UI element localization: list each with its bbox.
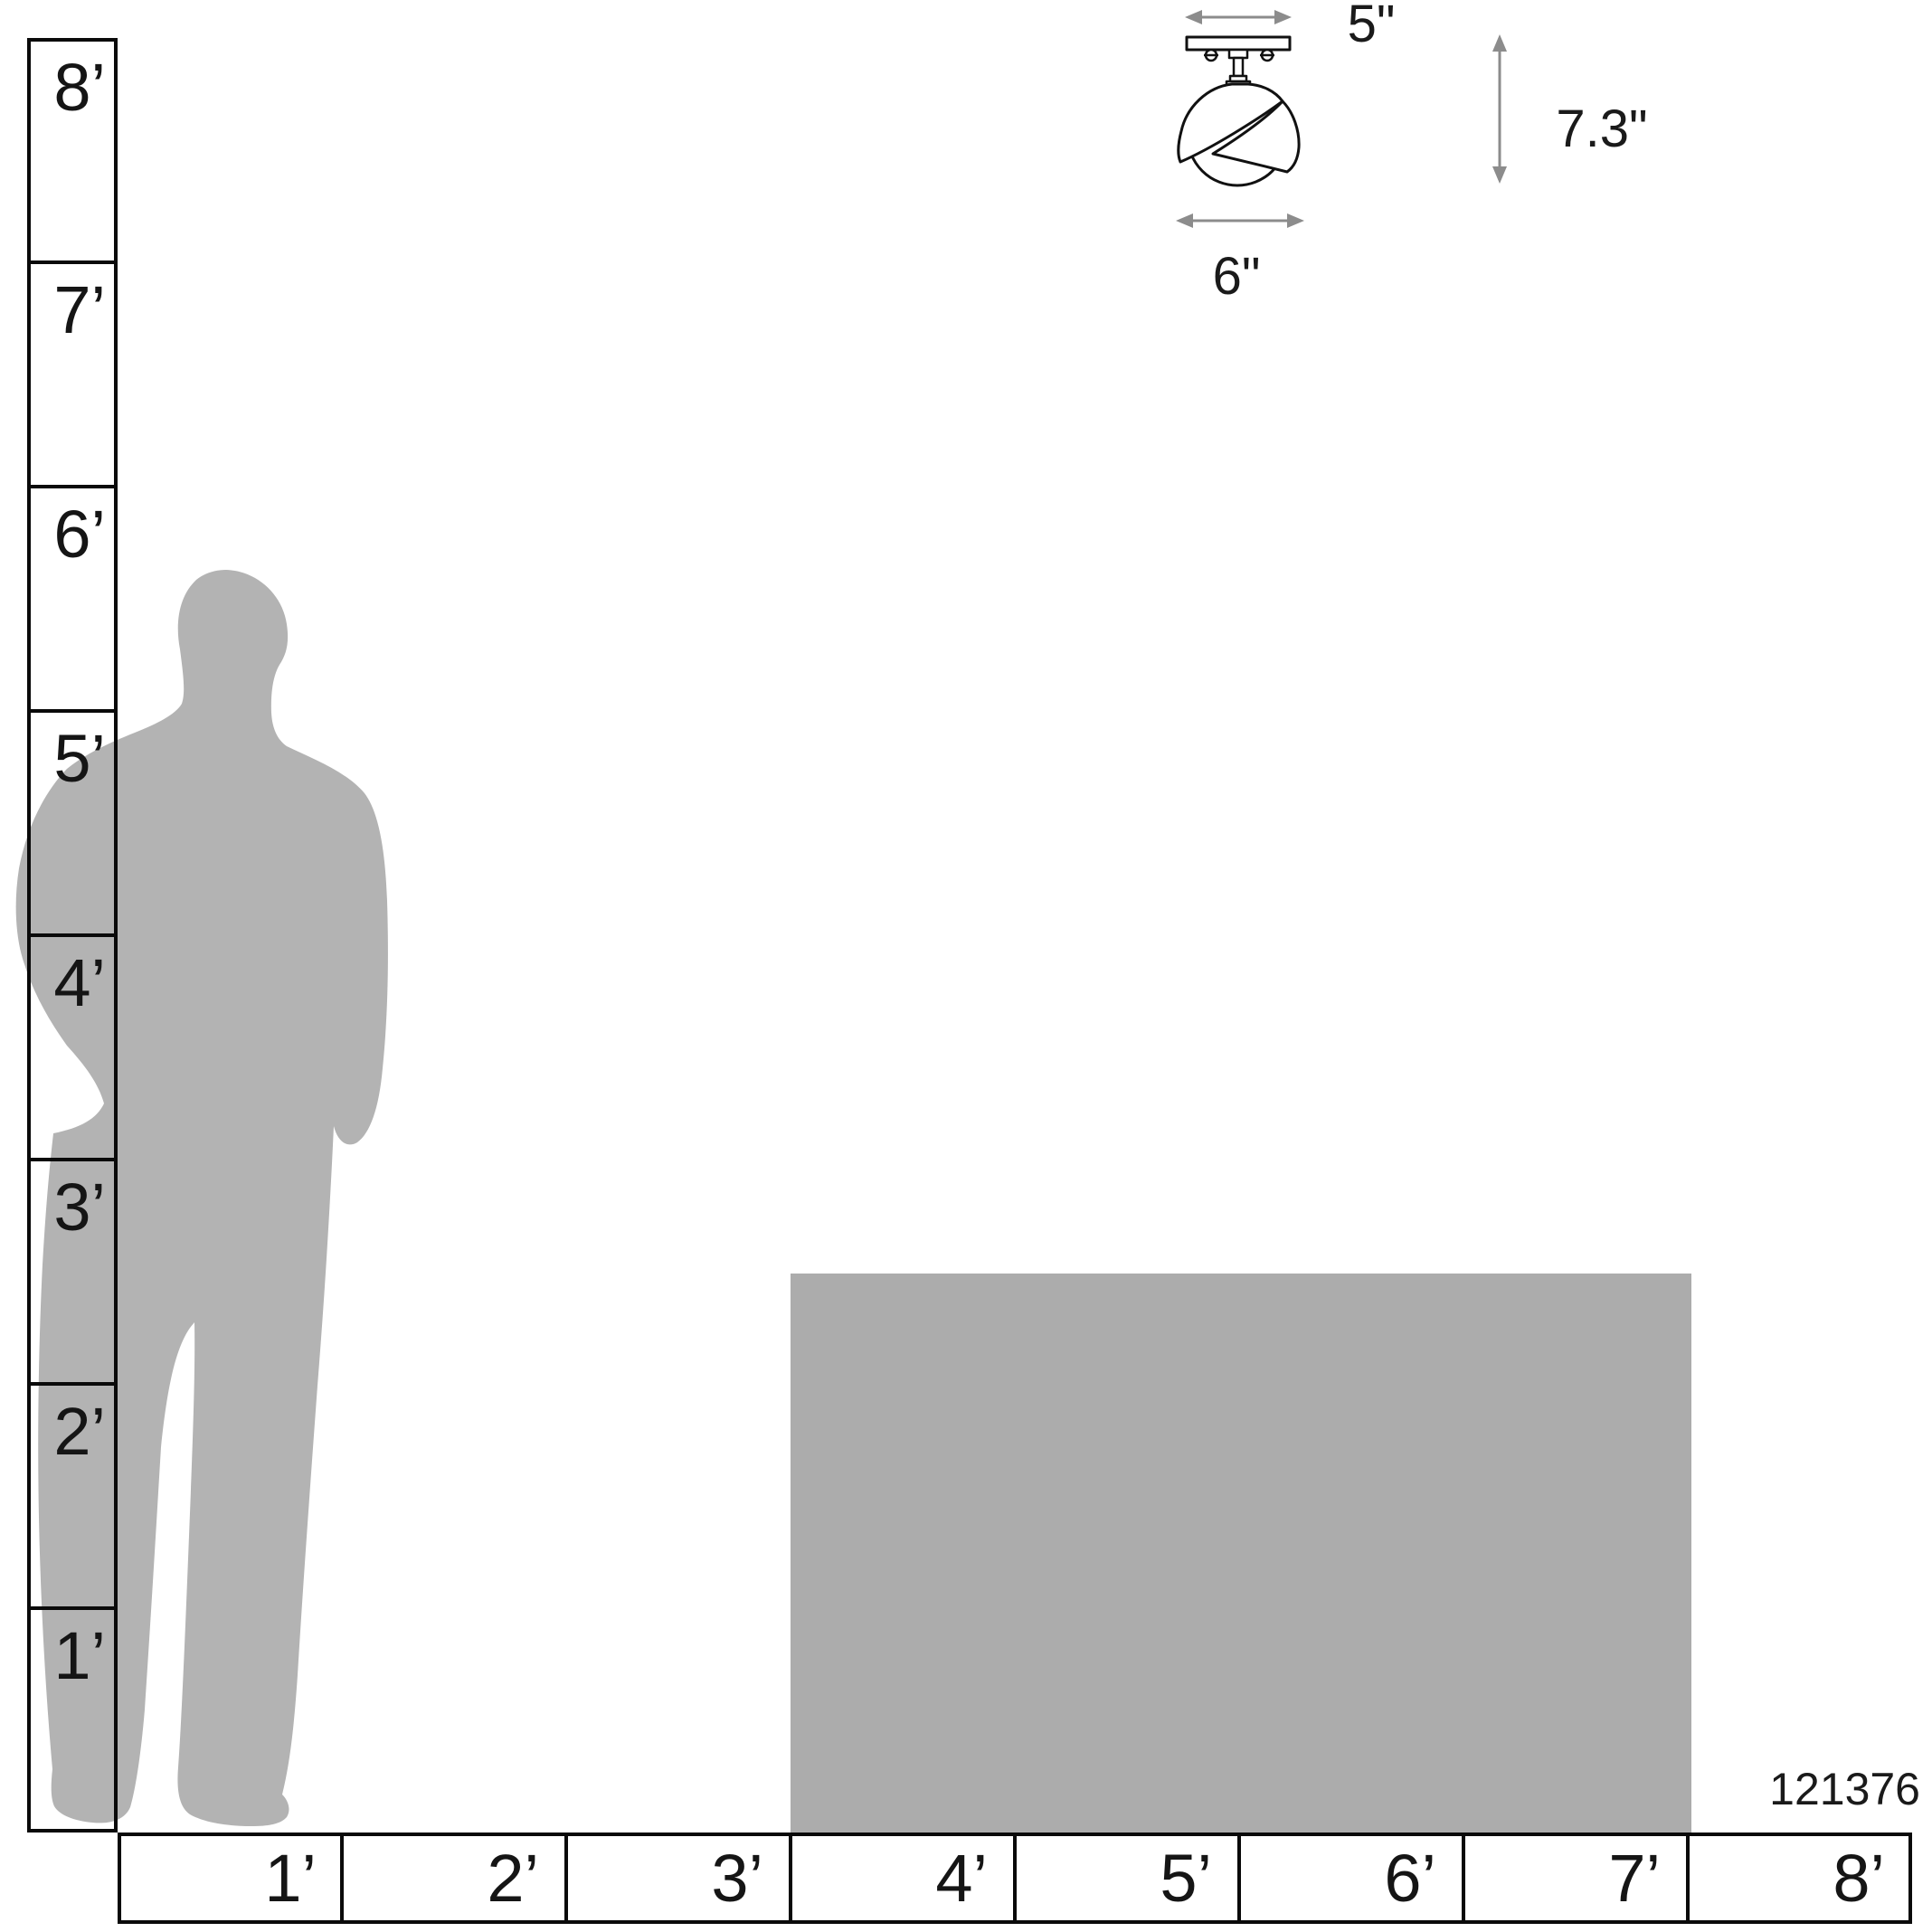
fixture-height-label: 7.3" — [1556, 103, 1647, 156]
vertical-ruler-label: 5’ — [53, 725, 106, 792]
horizontal-ruler-label: 5’ — [1160, 1845, 1212, 1912]
product-code: 121376 — [1769, 1766, 1920, 1812]
scale-diagram-canvas: 8’ 7’ 6’ 5’ 4’ 3’ 2’ 1’ 1’ 2’ 3’ 4’ 5’ 6… — [0, 0, 1932, 1932]
fixture-screw-right — [1260, 50, 1274, 61]
fixture-screw-left — [1204, 50, 1218, 61]
canopy-width-arrow-icon — [1185, 10, 1292, 24]
horizontal-ruler-label: 8’ — [1833, 1845, 1885, 1912]
shade-width-arrow-icon — [1176, 213, 1304, 228]
vertical-ruler-cell: 8’ — [31, 42, 114, 266]
vertical-ruler-label: 1’ — [53, 1623, 106, 1690]
vertical-ruler-label: 7’ — [53, 277, 106, 344]
vertical-ruler-cell: 1’ — [31, 1610, 114, 1834]
fixture-stem — [1226, 50, 1250, 86]
horizontal-ruler: 1’ 2’ 3’ 4’ 5’ 6’ 7’ 8’ — [118, 1833, 1912, 1924]
horizontal-ruler-label: 6’ — [1384, 1845, 1436, 1912]
canopy-width-label: 5" — [1348, 0, 1396, 51]
vertical-ruler-cell: 6’ — [31, 488, 114, 713]
horizontal-ruler-cell: 4’ — [792, 1836, 1017, 1920]
vertical-ruler-cell: 2’ — [31, 1386, 114, 1610]
horizontal-ruler-label: 1’ — [264, 1845, 317, 1912]
horizontal-ruler-cell: 8’ — [1690, 1836, 1914, 1920]
vertical-ruler-cell: 4’ — [31, 937, 114, 1161]
horizontal-ruler-cell: 2’ — [344, 1836, 568, 1920]
vertical-ruler-cell: 3’ — [31, 1161, 114, 1386]
horizontal-ruler-cell: 5’ — [1017, 1836, 1241, 1920]
ceiling-light-line-drawing — [1179, 37, 1299, 185]
table-silhouette — [791, 1274, 1691, 1833]
horizontal-ruler-label: 2’ — [487, 1845, 539, 1912]
vertical-ruler-label: 3’ — [53, 1174, 106, 1241]
vertical-ruler-label: 4’ — [53, 950, 106, 1017]
fixture-canopy — [1187, 37, 1290, 50]
vertical-ruler: 8’ 7’ 6’ 5’ 4’ 3’ 2’ 1’ — [27, 38, 118, 1833]
vertical-ruler-label: 8’ — [53, 54, 106, 121]
horizontal-ruler-label: 3’ — [711, 1845, 763, 1912]
horizontal-ruler-cell: 6’ — [1241, 1836, 1465, 1920]
fixture-height-arrow-icon — [1492, 34, 1507, 184]
horizontal-ruler-cell: 3’ — [568, 1836, 792, 1920]
horizontal-ruler-label: 7’ — [1608, 1845, 1661, 1912]
horizontal-ruler-cell: 7’ — [1465, 1836, 1690, 1920]
vertical-ruler-cell: 5’ — [31, 713, 114, 937]
vertical-ruler-label: 2’ — [53, 1398, 106, 1465]
horizontal-ruler-label: 4’ — [935, 1845, 988, 1912]
vertical-ruler-label: 6’ — [53, 501, 106, 568]
diagram-artwork — [0, 0, 1932, 1932]
vertical-ruler-cell: 7’ — [31, 264, 114, 488]
horizontal-ruler-cell: 1’ — [121, 1836, 346, 1920]
shade-width-label: 6" — [1213, 251, 1261, 303]
